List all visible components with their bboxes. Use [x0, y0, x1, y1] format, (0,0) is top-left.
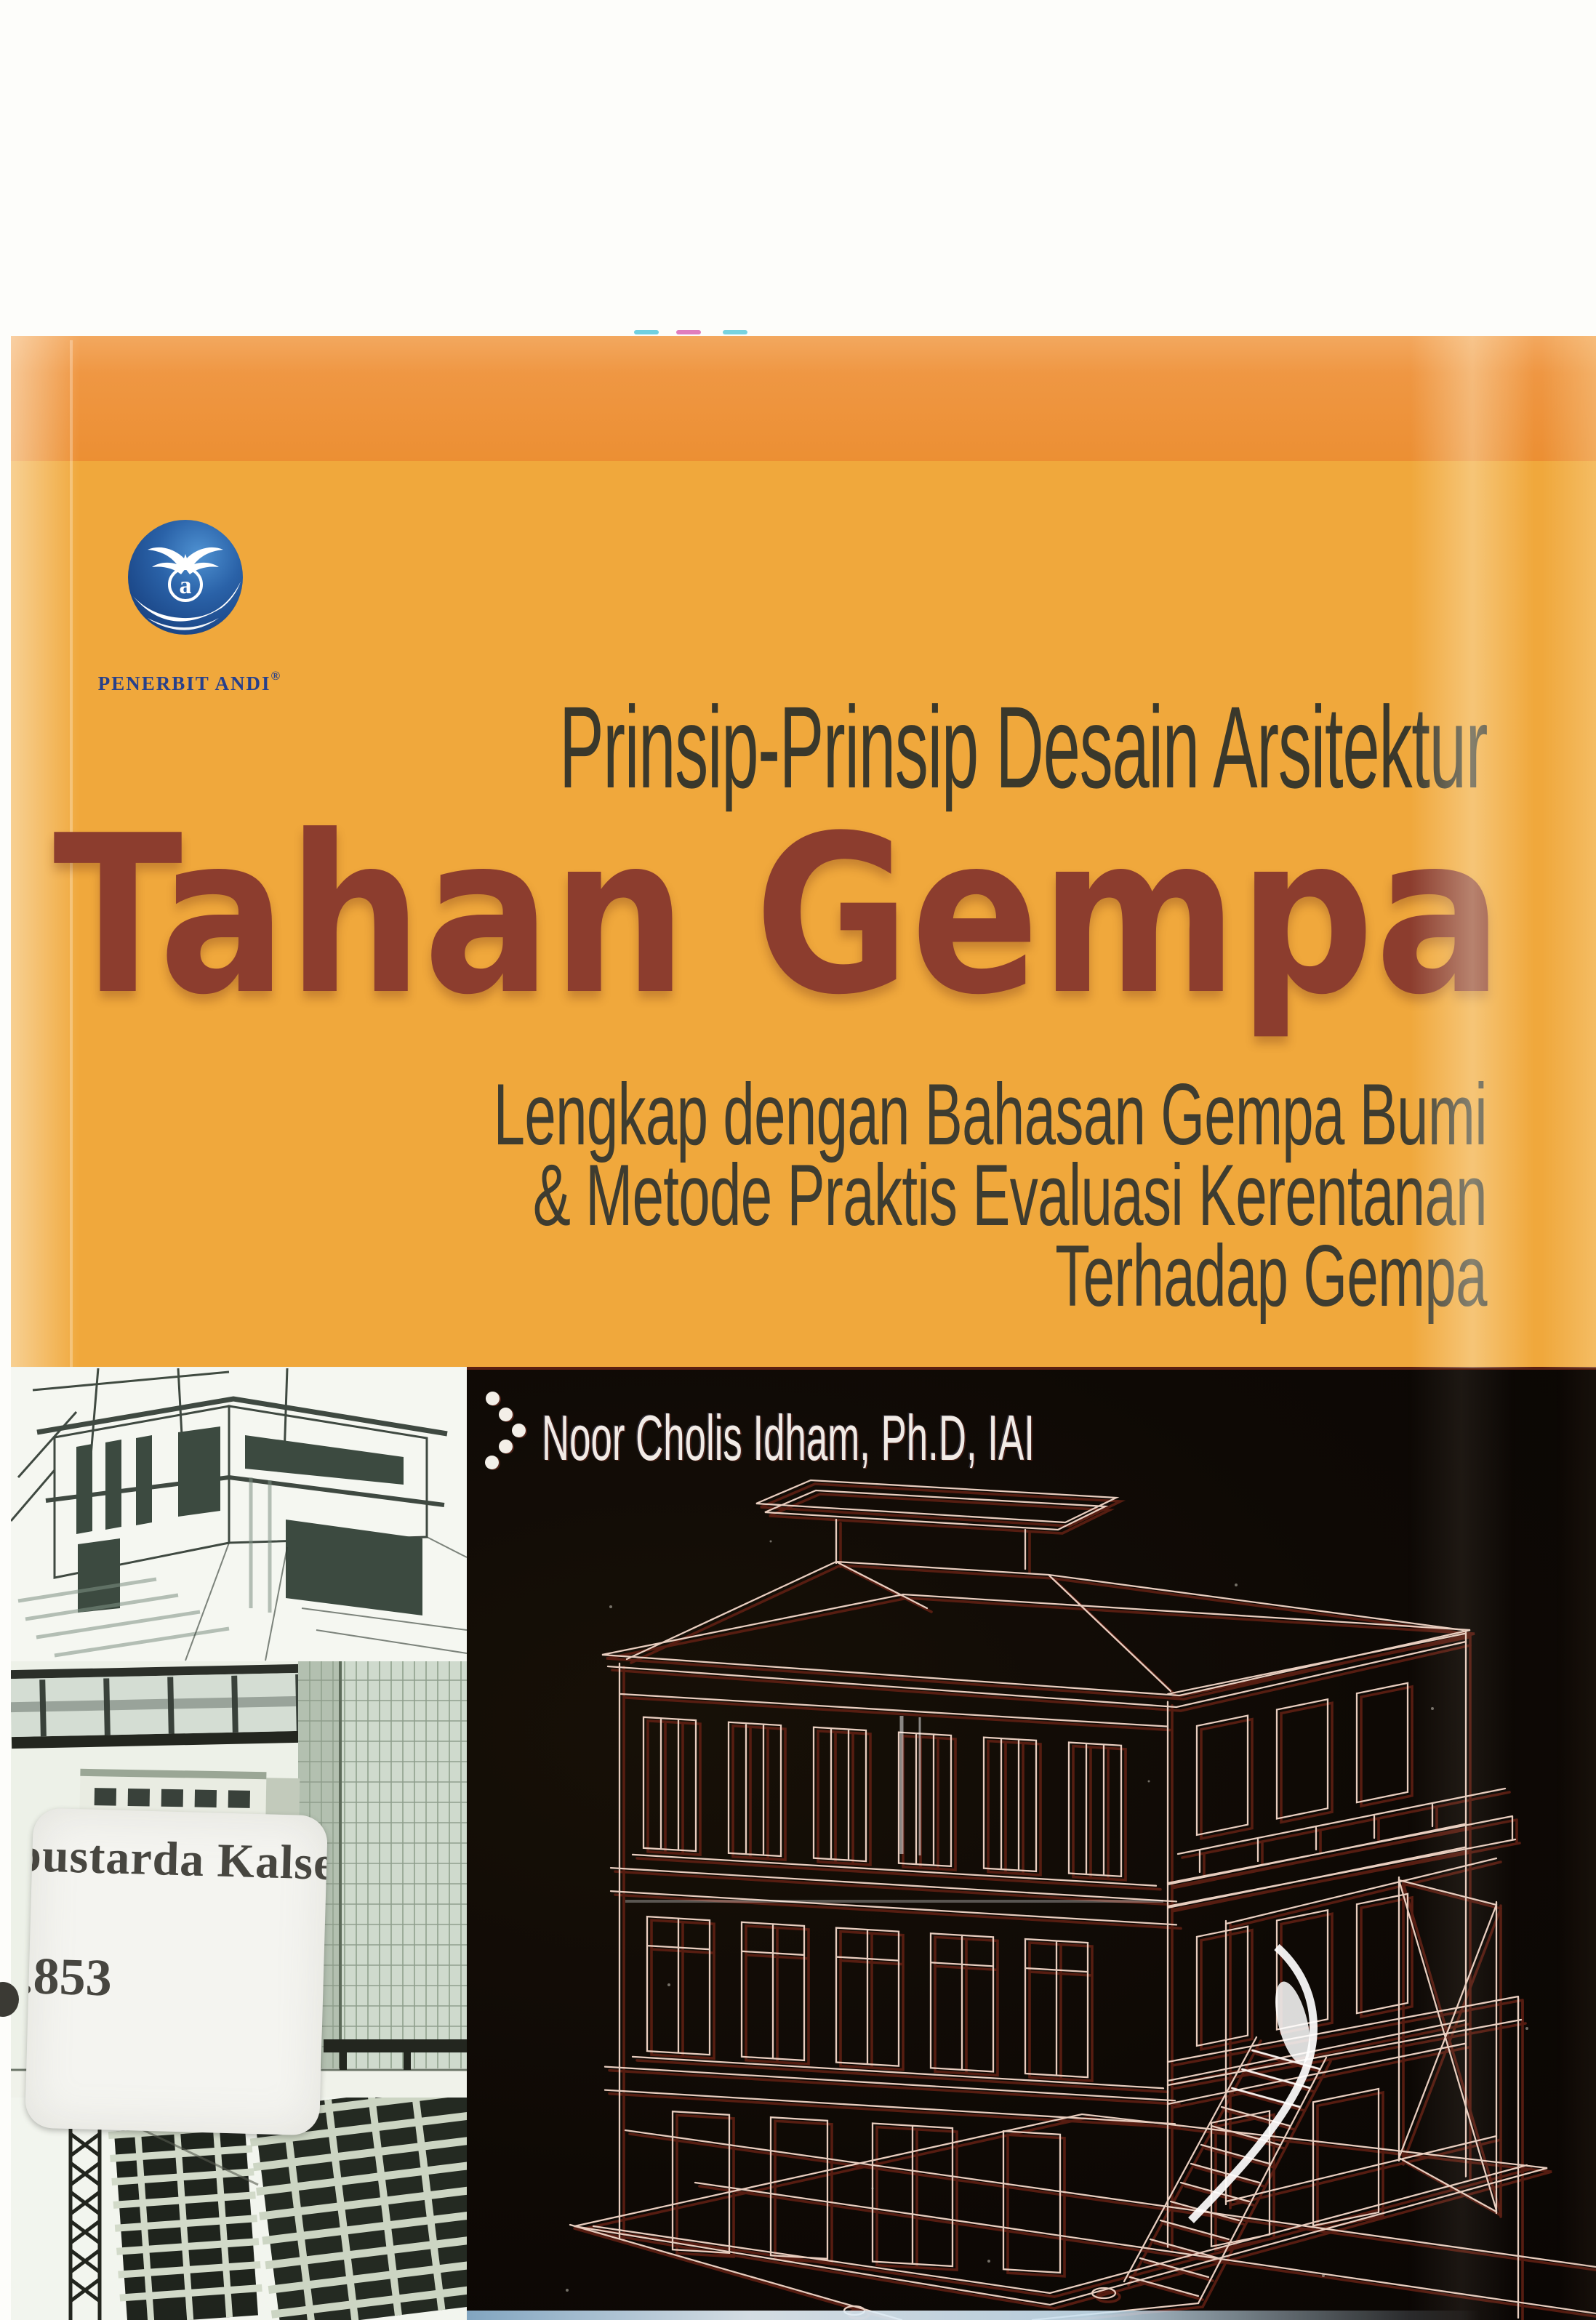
book-cover-scan: { "cover": { "publisher": { "logo_text":…	[0, 0, 1596, 2320]
print-registration-mark-cyan2	[723, 330, 747, 334]
library-sticker: pustarda Kalsel .853	[25, 1807, 328, 2135]
subtitle-line-3: Terhadap Gempa	[494, 1236, 1487, 1317]
publisher-logo-icon: a	[126, 518, 245, 640]
sticker-line-1: pustarda Kalsel	[25, 1828, 328, 1892]
sticker-line-2: .853	[25, 1946, 113, 2008]
svg-text:a: a	[180, 572, 192, 599]
registered-mark: ®	[271, 669, 281, 683]
dots-ornament-icon	[474, 1387, 532, 1474]
author-name: Noor Cholis Idham, Ph.D, IAI	[542, 1394, 1035, 1482]
subtitle-line-1: Lengkap dengan Bahasan Gempa Bumi	[494, 1075, 1487, 1155]
publisher-name-text: PENERBIT ANDI	[98, 673, 271, 694]
scanner-light-strip	[467, 2311, 1596, 2320]
print-registration-mark-magenta	[676, 330, 701, 334]
main-title: Tahan Gempa	[53, 796, 1504, 1036]
house-sketch-image	[11, 1368, 467, 1661]
subtitle-line-2: & Metode Praktis Evaluasi Kerentanan	[494, 1155, 1487, 1236]
print-registration-mark-cyan	[634, 330, 659, 334]
scan-right-edge-light	[1556, 1370, 1596, 2320]
amber-sheen-band	[1411, 336, 1534, 1368]
scan-sheen-band	[1407, 1370, 1516, 2320]
cover-top-orange-band	[11, 336, 1596, 461]
publisher-name: PENERBIT ANDI®	[73, 669, 305, 695]
series-title: Prinsip-Prinsip Desain Arsitektur	[559, 689, 1487, 806]
amber-right-edge-light	[1541, 336, 1596, 1368]
subtitle: Lengkap dengan Bahasan Gempa Bumi & Meto…	[494, 1075, 1487, 1317]
